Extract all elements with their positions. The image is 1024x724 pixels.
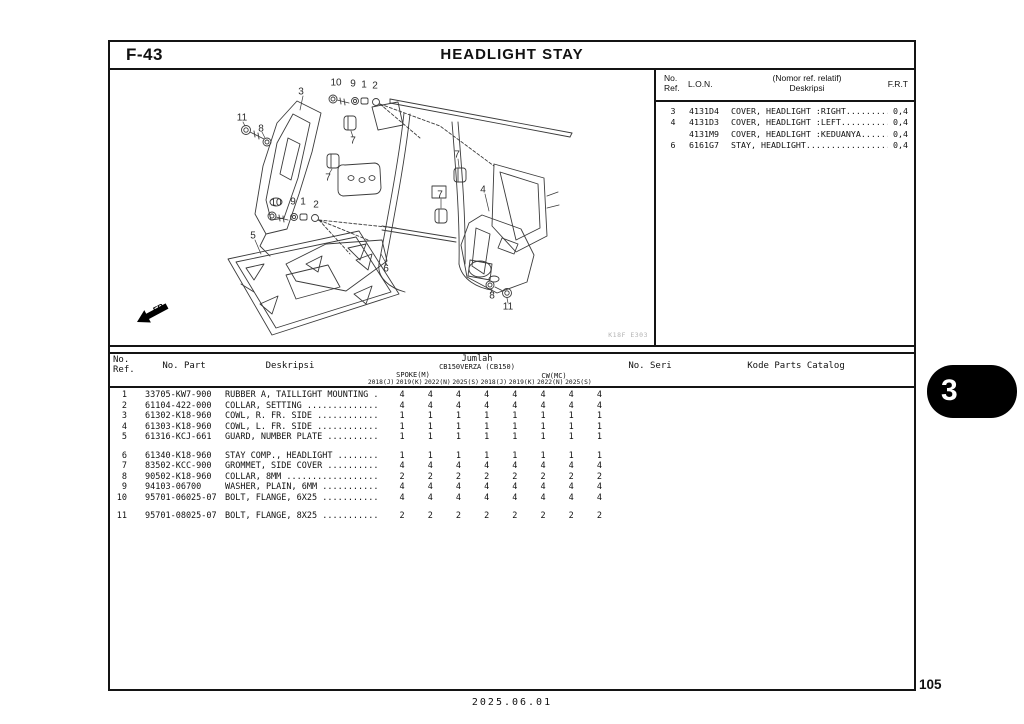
- part-6-stay: [286, 99, 572, 292]
- desc-cell: COWL, R. FR. SIDE ............: [225, 411, 388, 422]
- page-border: F-43 HEADLIGHT STAY: [108, 40, 916, 691]
- qty-cell: 4: [501, 482, 529, 493]
- part-callout: 2: [313, 200, 319, 211]
- part-4-cowl: [461, 215, 534, 293]
- diagram-code: K18F E303: [608, 331, 648, 339]
- qty-cell: 4: [473, 461, 501, 472]
- desc-cell: GUARD, NUMBER PLATE ..........: [225, 432, 388, 443]
- col-spoke: SPOKE(M): [396, 371, 430, 379]
- qty-cell: 4: [501, 461, 529, 472]
- part-number-cell: 90502-K18-960: [145, 472, 225, 483]
- fr-label: FR.: [152, 301, 168, 315]
- qty-cell: 4: [416, 390, 444, 401]
- qty-cell: 1: [388, 432, 416, 443]
- qty-cell: 1: [529, 432, 557, 443]
- qty-cell: 4: [529, 461, 557, 472]
- qty-cell: 1: [473, 432, 501, 443]
- qty-cell: 1: [473, 411, 501, 422]
- qty-cell: 4: [585, 493, 613, 504]
- qty-cell: 4: [529, 482, 557, 493]
- reference-table-header: No. Ref. L.O.N. (Nomor ref. relatif) Des…: [656, 70, 914, 102]
- part-number-cell: 95701-06025-07: [145, 493, 225, 504]
- ref-cell: 7: [110, 461, 127, 472]
- part-number-cell: 61316-KCJ-661: [145, 432, 225, 443]
- year-label: 2025(S): [564, 379, 592, 386]
- ref-cell: 4: [664, 117, 682, 128]
- exploded-diagram: FR. 109123118777741091256811 K18F E303: [110, 70, 656, 347]
- qty-cell: 1: [501, 451, 529, 462]
- ref-cell: 6: [664, 140, 682, 151]
- qty-cell: 1: [473, 451, 501, 462]
- qty-cell: 1: [388, 422, 416, 433]
- part-number-cell: 83502-KCC-900: [145, 461, 225, 472]
- part-callout: 9: [290, 197, 296, 208]
- qty-cell: 1: [585, 432, 613, 443]
- part-callout: 10: [330, 78, 341, 89]
- qty-cell: 4: [473, 493, 501, 504]
- qty-cell: 4: [388, 390, 416, 401]
- lon-col-header: L.O.N.: [688, 73, 730, 100]
- ref-table-body: 34131D4COVER, HEADLIGHT :RIGHT..........…: [656, 102, 914, 152]
- qty-cell: 1: [416, 422, 444, 433]
- part-callout: 7: [350, 136, 356, 147]
- qty-cell: 2: [557, 472, 585, 483]
- qty-cell: 2: [444, 511, 472, 522]
- table-row: 461303-K18-960COWL, L. FR. SIDE ........…: [110, 422, 914, 433]
- part-5-guard: [228, 231, 399, 335]
- reference-table: No. Ref. L.O.N. (Nomor ref. relatif) Des…: [656, 70, 914, 347]
- qty-cell: 1: [444, 411, 472, 422]
- qty-cell: 4: [473, 482, 501, 493]
- year-label: 2025(S): [452, 379, 480, 386]
- desc-cell: COVER, HEADLIGHT :RIGHT..........: [731, 106, 888, 117]
- table-row: 661340-K18-960STAY COMP., HEADLIGHT ....…: [110, 451, 914, 462]
- lon-cell: 6161G7: [689, 140, 729, 151]
- part-number-cell: 33705-KW7-900: [145, 390, 225, 401]
- col-no-seri: No. Seri: [628, 361, 671, 371]
- qty-cell: 4: [388, 401, 416, 412]
- qty-cell: 4: [444, 493, 472, 504]
- desc-cell: BOLT, FLANGE, 8X25 ...........: [225, 511, 388, 522]
- qty-cell: 4: [557, 390, 585, 401]
- qty-cell: 4: [444, 461, 472, 472]
- qty-cell: 2: [473, 511, 501, 522]
- section-tab-number: 3: [941, 374, 958, 408]
- ref-cell: 1: [110, 390, 127, 401]
- part-callout: 2: [372, 81, 378, 92]
- qty-cell: 1: [444, 451, 472, 462]
- qty-cell: 2: [501, 472, 529, 483]
- qty-cell: 1: [501, 422, 529, 433]
- qty-cell: 4: [585, 461, 613, 472]
- part-callout: 8: [489, 291, 495, 302]
- qty-cell: 4: [388, 493, 416, 504]
- ref-cell: 3: [664, 106, 682, 117]
- desc-cell: GROMMET, SIDE COVER ..........: [225, 461, 388, 472]
- qty-cell: 2: [585, 511, 613, 522]
- ref-cell: 6: [110, 451, 127, 462]
- ref-cell: 10: [110, 493, 127, 504]
- ref-cell: 8: [110, 472, 127, 483]
- grommet-icons: [327, 116, 466, 223]
- qty-cell: 4: [501, 401, 529, 412]
- year-label: 2022(N): [423, 379, 451, 386]
- qty-cell: 1: [416, 432, 444, 443]
- lon-cell: 4131M9: [689, 129, 729, 140]
- qty-cell: 4: [585, 390, 613, 401]
- qty-cell: 4: [444, 401, 472, 412]
- table-row: 44131D3COVER, HEADLIGHT :LEFT...........…: [664, 117, 908, 128]
- year-label: 2022(N): [536, 379, 564, 386]
- table-row: 1095701-06025-07BOLT, FLANGE, 6X25 .....…: [110, 493, 914, 504]
- qty-cell: 4: [473, 390, 501, 401]
- qty-cell: 4: [416, 493, 444, 504]
- qty-cell: 1: [444, 432, 472, 443]
- qty-cell: 4: [501, 390, 529, 401]
- table-row: 261104-422-000COLLAR, SETTING ..........…: [110, 401, 914, 412]
- date-stamp: 2025.06.01: [0, 697, 1024, 708]
- qty-cell: 4: [557, 461, 585, 472]
- qty-cell: 2: [416, 511, 444, 522]
- qty-cell: 4: [557, 493, 585, 504]
- table-row: 133705-KW7-900RUBBER A, TAILLIGHT MOUNTI…: [110, 390, 914, 401]
- part-number-cell: 61104-422-000: [145, 401, 225, 412]
- qty-cell: 4: [388, 461, 416, 472]
- bolt-icons: [242, 126, 512, 298]
- qty-cell: 2: [416, 472, 444, 483]
- qty-cell: 4: [557, 401, 585, 412]
- qty-cell: 4: [529, 401, 557, 412]
- table-row: 994103-06700WASHER, PLAIN, 6MM .........…: [110, 482, 914, 493]
- desc-cell: COLLAR, 8MM ..................: [225, 472, 388, 483]
- qty-cell: 1: [416, 411, 444, 422]
- qty-cell: 1: [388, 411, 416, 422]
- part-callout: 7: [437, 190, 443, 201]
- qty-cell: 1: [557, 422, 585, 433]
- qty-cell: 2: [557, 511, 585, 522]
- part-number-cell: 61340-K18-960: [145, 451, 225, 462]
- table-row: 890502-K18-960COLLAR, 8MM ..............…: [110, 472, 914, 483]
- qty-cell: 1: [444, 422, 472, 433]
- qty-cell: 4: [416, 482, 444, 493]
- page-title: HEADLIGHT STAY: [110, 46, 914, 63]
- qty-cell: 1: [501, 411, 529, 422]
- qty-cell: 4: [388, 482, 416, 493]
- part-callout: 6: [383, 264, 389, 275]
- page-number: 105: [919, 677, 942, 692]
- desc-cell: COVER, HEADLIGHT :KEDUANYA.......: [731, 129, 888, 140]
- part-callout: 11: [237, 113, 247, 124]
- year-label: 2019(K): [395, 379, 423, 386]
- part-callout: 5: [250, 231, 256, 242]
- frt-cell: 0,4: [888, 140, 908, 151]
- part-number-cell: 61302-K18-960: [145, 411, 225, 422]
- fastener-group-mid: [268, 212, 322, 222]
- part-number-cell: 61303-K18-960: [145, 422, 225, 433]
- ref-cell: [664, 129, 682, 140]
- qty-cell: 2: [388, 472, 416, 483]
- qty-cell: 2: [444, 472, 472, 483]
- table-row: 561316-KCJ-661GUARD, NUMBER PLATE ......…: [110, 432, 914, 443]
- qty-cell: 4: [585, 482, 613, 493]
- part-callout: 7: [454, 150, 460, 161]
- catalog-page: { "header": { "code": "F-43", "title": "…: [0, 0, 1024, 724]
- part-3-cowl: [255, 101, 321, 256]
- desc-cell: STAY, HEADLIGHT..................: [731, 140, 888, 151]
- qty-cell: 1: [529, 411, 557, 422]
- qty-cell: 4: [444, 390, 472, 401]
- parts-table-body: 133705-KW7-900RUBBER A, TAILLIGHT MOUNTI…: [110, 388, 914, 522]
- qty-cell: 1: [585, 422, 613, 433]
- title-band: F-43 HEADLIGHT STAY: [110, 42, 914, 70]
- frt-cell: 0,4: [888, 129, 908, 140]
- qty-cell: 2: [529, 511, 557, 522]
- table-row: 66161G7STAY, HEADLIGHT..................…: [664, 140, 908, 151]
- part-callout: 9: [350, 79, 356, 90]
- table-row: 4131M9COVER, HEADLIGHT :KEDUANYA.......0…: [664, 129, 908, 140]
- table-row: 783502-KCC-900GROMMET, SIDE COVER ......…: [110, 461, 914, 472]
- ref-cell: 2: [110, 401, 127, 412]
- qty-cell: 2: [585, 472, 613, 483]
- diagram-svg: FR.: [110, 70, 654, 345]
- desc-cell: COWL, L. FR. SIDE ............: [225, 422, 388, 433]
- qty-cell: 4: [416, 401, 444, 412]
- qty-cell: 4: [416, 461, 444, 472]
- qty-cell: 2: [501, 511, 529, 522]
- desc-cell: COVER, HEADLIGHT :LEFT...........: [731, 117, 888, 128]
- qty-cell: 1: [529, 422, 557, 433]
- year-label: 2019(K): [508, 379, 536, 386]
- desc-cell: RUBBER A, TAILLIGHT MOUNTING .: [225, 390, 388, 401]
- part-callout: 3: [298, 87, 304, 98]
- qty-cell: 4: [473, 401, 501, 412]
- ref-cell: 4: [110, 422, 127, 433]
- col-model: CB150VERZA (CB150): [439, 363, 515, 371]
- parts-table-header: No. Ref. No. Part Deskripsi Jumlah CB150…: [110, 352, 914, 388]
- ref-cell: 9: [110, 482, 127, 493]
- qty-cell: 2: [388, 511, 416, 522]
- desc-col-header: (Nomor ref. relatif) Deskripsi: [730, 73, 884, 100]
- qty-cell: 1: [473, 422, 501, 433]
- qty-cell: 4: [529, 493, 557, 504]
- desc-cell: BOLT, FLANGE, 6X25 ...........: [225, 493, 388, 504]
- col-kode: Kode Parts Catalog: [747, 361, 845, 371]
- table-row: 34131D4COVER, HEADLIGHT :RIGHT..........…: [664, 106, 908, 117]
- qty-cell: 4: [529, 390, 557, 401]
- qty-cell: 1: [557, 411, 585, 422]
- col-no: No.: [113, 355, 129, 365]
- part-number-cell: 94103-06700: [145, 482, 225, 493]
- qty-cell: 4: [585, 401, 613, 412]
- ref-cell: 11: [110, 511, 127, 522]
- table-row: 1195701-08025-07BOLT, FLANGE, 8X25 .....…: [110, 511, 914, 522]
- frt-col-header: F.R.T: [884, 73, 908, 100]
- part-callout: 1: [300, 197, 306, 208]
- part-callout: 7: [325, 173, 331, 184]
- qty-cell: 4: [501, 493, 529, 504]
- fastener-group-top: [329, 95, 383, 106]
- qty-cell: 1: [501, 432, 529, 443]
- qty-cell: 4: [444, 482, 472, 493]
- lon-cell: 4131D3: [689, 117, 729, 128]
- qty-cell: 4: [557, 482, 585, 493]
- desc-cell: STAY COMP., HEADLIGHT ........: [225, 451, 388, 462]
- part-callout: 8: [258, 124, 264, 135]
- qty-cell: 1: [529, 451, 557, 462]
- year-label: 2018(J): [367, 379, 395, 386]
- ref-cell: 5: [110, 432, 127, 443]
- col-ref: Ref.: [113, 365, 135, 375]
- desc-cell: COLLAR, SETTING ..............: [225, 401, 388, 412]
- part-number-cell: 95701-08025-07: [145, 511, 225, 522]
- frt-cell: 0,4: [888, 106, 908, 117]
- part-callout: 11: [503, 302, 513, 313]
- desc-cell: WASHER, PLAIN, 6MM ...........: [225, 482, 388, 493]
- part-callout: 10: [270, 198, 281, 209]
- lon-cell: 4131D4: [689, 106, 729, 117]
- qty-cell: 2: [473, 472, 501, 483]
- qty-cell: 1: [416, 451, 444, 462]
- col-deskripsi: Deskripsi: [266, 361, 315, 371]
- qty-cell: 1: [388, 451, 416, 462]
- table-row: 361302-K18-960COWL, R. FR. SIDE ........…: [110, 411, 914, 422]
- year-label: 2018(J): [480, 379, 508, 386]
- section-tab: 3: [927, 365, 1017, 418]
- part-callout: 4: [480, 185, 486, 196]
- qty-cell: 1: [585, 451, 613, 462]
- qty-cell: 1: [585, 411, 613, 422]
- col-no-part: No. Part: [162, 361, 205, 371]
- part-callout: 1: [361, 80, 367, 91]
- qty-cell: 2: [529, 472, 557, 483]
- ref-col-header: No. Ref.: [664, 73, 688, 100]
- year-row: 2018(J)2019(K)2022(N)2025(S)2018(J)2019(…: [367, 379, 593, 386]
- leader-lines-dashed: [319, 104, 494, 254]
- qty-cell: 1: [557, 432, 585, 443]
- qty-cell: 1: [557, 451, 585, 462]
- frt-cell: 0,4: [888, 117, 908, 128]
- ref-cell: 3: [110, 411, 127, 422]
